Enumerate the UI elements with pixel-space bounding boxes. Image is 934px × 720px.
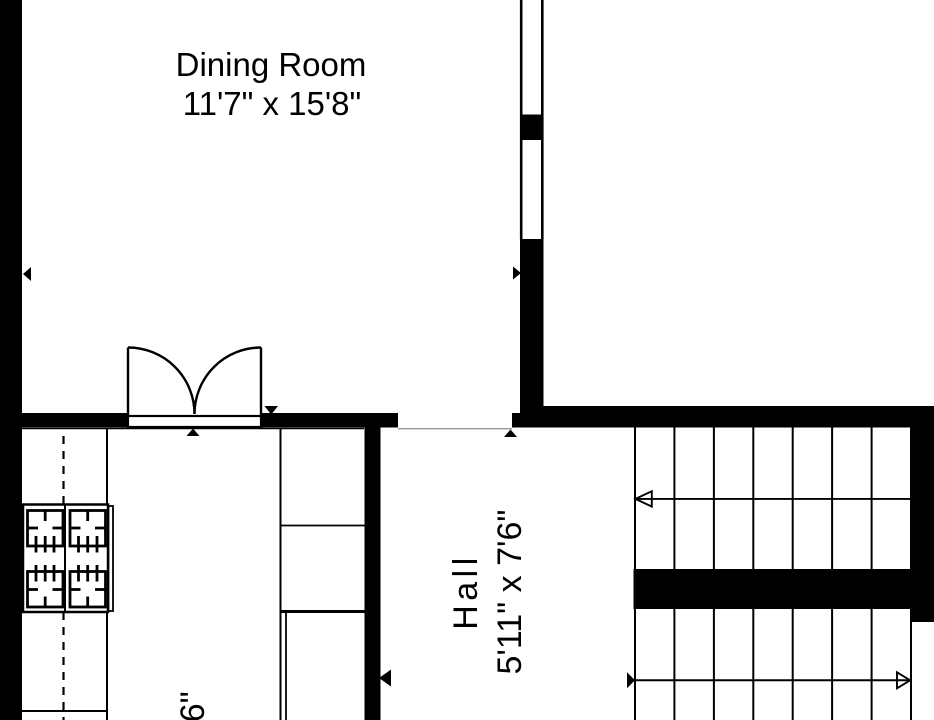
svg-text:Hall: Hall xyxy=(447,553,485,630)
svg-text:5'11" x 7'6": 5'11" x 7'6" xyxy=(491,509,529,674)
svg-text:9'6": 9'6" xyxy=(174,691,212,720)
svg-text:11'7" x 15'8": 11'7" x 15'8" xyxy=(183,85,362,122)
svg-text:Dining Room: Dining Room xyxy=(176,46,367,83)
